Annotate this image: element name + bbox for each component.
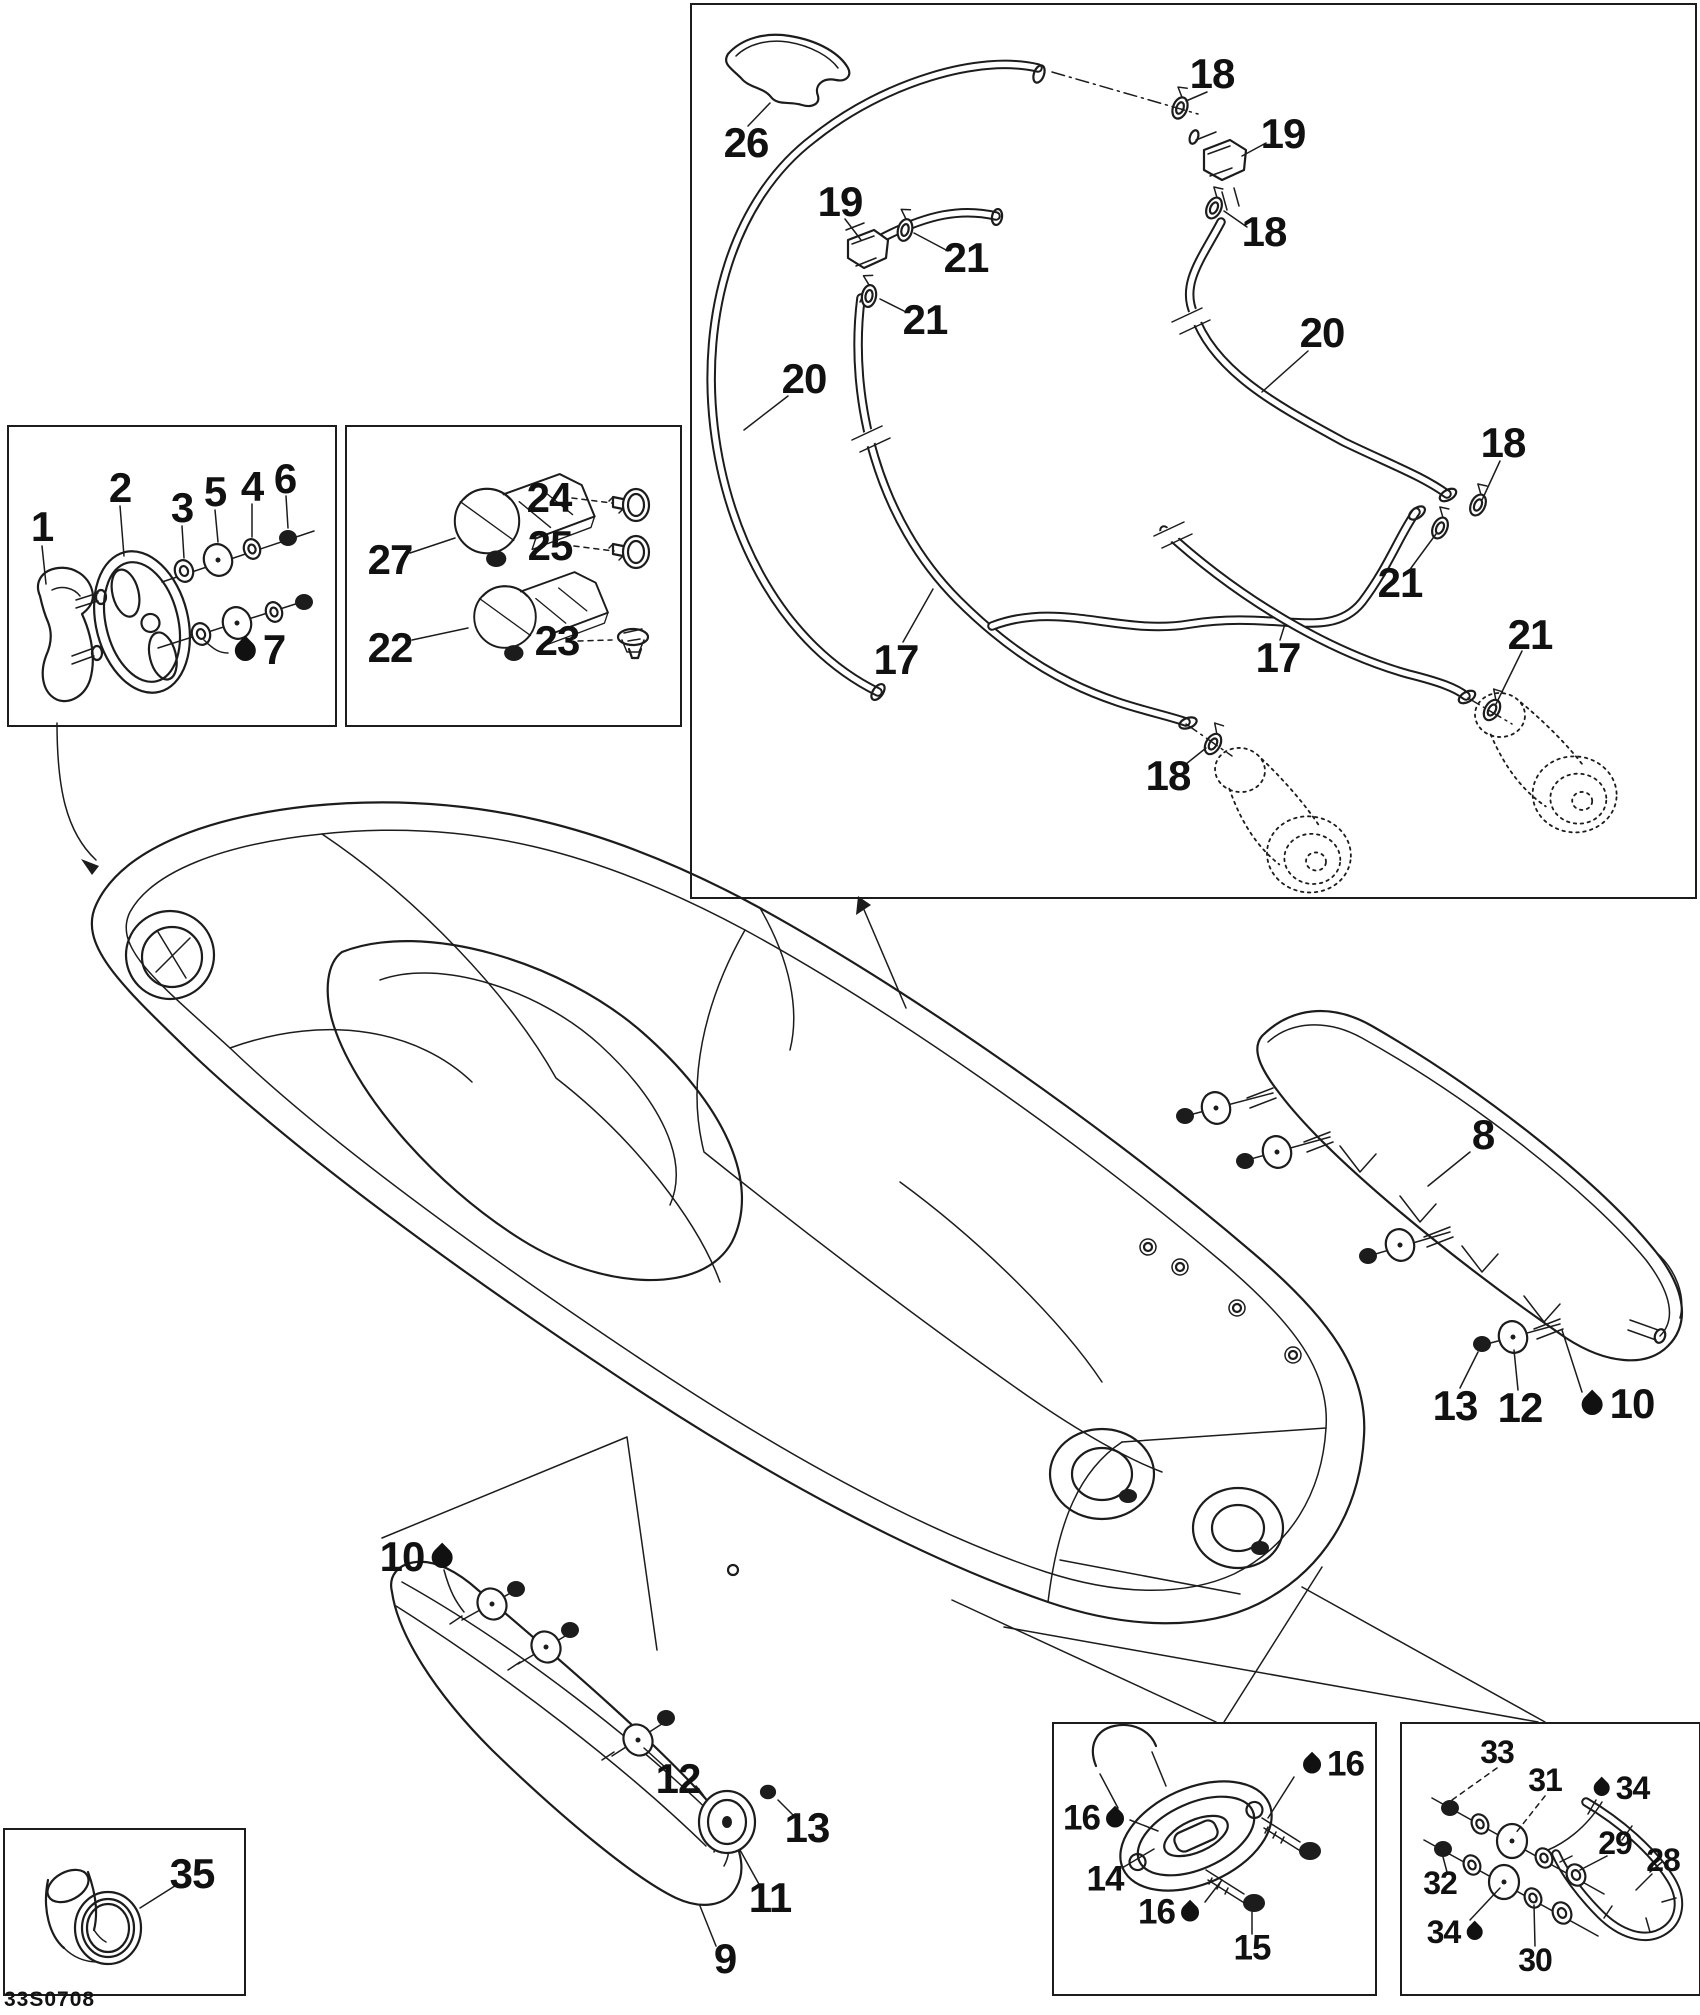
left-nozzle-reference: [1200, 745, 1364, 898]
callout-label: 33: [1480, 1736, 1514, 1768]
callout-16: 16: [1063, 1801, 1127, 1836]
callout-label: 34: [1616, 1772, 1650, 1804]
callout-label: 21: [1508, 614, 1553, 656]
callout-1: 1: [31, 506, 53, 548]
callout-label: 20: [1300, 312, 1345, 354]
callout-label: 22: [368, 627, 413, 669]
callout-label: 17: [874, 639, 919, 681]
callout-label: 21: [1378, 562, 1423, 604]
callout-35: 35: [170, 1853, 215, 1895]
callout-label: 23: [535, 620, 580, 662]
left-sponson-drawing: [391, 1562, 796, 1946]
callout-7: 7: [231, 629, 285, 671]
callout-29: 29: [1598, 1827, 1632, 1859]
callout-label: 12: [1498, 1387, 1543, 1429]
callout-21: 21: [944, 237, 989, 279]
callout-11: 11: [749, 1877, 791, 1919]
callout-14: 14: [1087, 1862, 1124, 1897]
callout-13: 13: [785, 1807, 830, 1849]
callout-label: 7: [263, 629, 285, 671]
callout-label: 13: [785, 1807, 830, 1849]
callout-30: 30: [1518, 1944, 1552, 1976]
callout-label: 19: [818, 181, 863, 223]
oil-drop-icon: [1577, 1389, 1607, 1419]
callout-33: 33: [1480, 1736, 1514, 1768]
callout-label: 8: [1472, 1114, 1494, 1156]
callout-label: 12: [656, 1758, 701, 1800]
callout-4: 4: [241, 466, 263, 508]
callout-label: 14: [1087, 1862, 1124, 1897]
callout-27: 27: [368, 539, 413, 581]
callout-28: 28: [1646, 1844, 1680, 1876]
hull-drawing: [92, 802, 1364, 1623]
callout-16: 16: [1300, 1747, 1364, 1782]
callout-label: 21: [944, 237, 989, 279]
callout-label: 18: [1146, 755, 1191, 797]
drain-fitting-drawing: [1093, 1725, 1321, 1934]
callout-label: 28: [1646, 1844, 1680, 1876]
callout-label: 17: [1256, 637, 1301, 679]
callout-24: 24: [527, 477, 572, 519]
callout-label: 21: [903, 299, 948, 341]
callout-18: 18: [1242, 211, 1287, 253]
callout-label: 10: [380, 1536, 425, 1578]
callout-label: 26: [724, 122, 769, 164]
callout-8: 8: [1472, 1114, 1494, 1156]
callout-19: 19: [818, 181, 863, 223]
callout-label: 9: [714, 1938, 736, 1980]
callout-label: 35: [170, 1853, 215, 1895]
callout-label: 34: [1427, 1916, 1461, 1948]
callout-label: 11: [749, 1877, 791, 1919]
oil-drop-icon: [1590, 1777, 1613, 1800]
callout-label: 15: [1234, 1931, 1271, 1966]
callout-label: 31: [1528, 1764, 1562, 1796]
callout-label: 16: [1138, 1895, 1175, 1930]
oil-drop-icon: [427, 1542, 457, 1572]
callout-label: 2: [109, 467, 131, 509]
callout-10: 10: [380, 1536, 457, 1578]
callout-label: 6: [274, 458, 296, 500]
callout-12: 12: [656, 1758, 701, 1800]
callout-9: 9: [714, 1938, 736, 1980]
callout-34: 34: [1427, 1916, 1486, 1948]
callout-label: 32: [1423, 1867, 1457, 1899]
callout-label: 10: [1610, 1383, 1655, 1425]
callout-22: 22: [368, 627, 413, 669]
callout-2: 2: [109, 467, 131, 509]
callout-15: 15: [1234, 1931, 1271, 1966]
callout-17: 17: [1256, 637, 1301, 679]
callout-label: 3: [171, 487, 193, 529]
callout-label: 4: [241, 466, 263, 508]
callout-19: 19: [1261, 113, 1306, 155]
diagram-linework: [0, 0, 1700, 2015]
callout-18: 18: [1481, 422, 1526, 464]
callout-label: 18: [1190, 53, 1235, 95]
callout-26: 26: [724, 122, 769, 164]
callout-3: 3: [171, 487, 193, 529]
callout-12: 12: [1498, 1387, 1543, 1429]
callout-label: 30: [1518, 1944, 1552, 1976]
part-26-cover: [726, 35, 849, 106]
callout-5: 5: [204, 471, 226, 513]
callout-label: 25: [528, 525, 573, 567]
sleeve-drawing: [42, 1863, 178, 1964]
callout-34: 34: [1591, 1772, 1650, 1804]
callout-label: 1: [31, 506, 53, 548]
callout-label: 16: [1063, 1801, 1100, 1836]
callout-21: 21: [1508, 614, 1553, 656]
connector-leaders: [57, 723, 1545, 1722]
callout-label: 27: [368, 539, 413, 581]
callout-label: 18: [1242, 211, 1287, 253]
callout-10: 10: [1578, 1383, 1655, 1425]
right-rail-drawing: [1176, 1011, 1682, 1392]
callout-25: 25: [528, 525, 573, 567]
callout-label: 18: [1481, 422, 1526, 464]
callout-31: 31: [1528, 1764, 1562, 1796]
callout-13: 13: [1433, 1385, 1478, 1427]
callout-18: 18: [1146, 755, 1191, 797]
callout-label: 5: [204, 471, 226, 513]
oil-drop-icon: [1177, 1899, 1202, 1924]
figure-code: 33S0708: [4, 1988, 95, 2012]
oil-drop-icon: [1299, 1751, 1324, 1776]
callout-label: 19: [1261, 113, 1306, 155]
callout-label: 29: [1598, 1827, 1632, 1859]
callout-16: 16: [1138, 1895, 1202, 1930]
oil-drop-icon: [1102, 1805, 1127, 1830]
callout-20: 20: [782, 358, 827, 400]
callout-18: 18: [1190, 53, 1235, 95]
callout-label: 13: [1433, 1385, 1478, 1427]
callout-label: 20: [782, 358, 827, 400]
callout-20: 20: [1300, 312, 1345, 354]
callout-21: 21: [1378, 562, 1423, 604]
callout-32: 32: [1423, 1867, 1457, 1899]
callout-23: 23: [535, 620, 580, 662]
oil-drop-icon: [230, 635, 260, 665]
callout-17: 17: [874, 639, 919, 681]
callout-6: 6: [274, 458, 296, 500]
callout-21: 21: [903, 299, 948, 341]
callout-label: 24: [527, 477, 572, 519]
callout-label: 16: [1327, 1747, 1364, 1782]
parts-diagram-page: 1235467272224252326192121181918202018212…: [0, 0, 1700, 2015]
oil-drop-icon: [1463, 1921, 1486, 1944]
